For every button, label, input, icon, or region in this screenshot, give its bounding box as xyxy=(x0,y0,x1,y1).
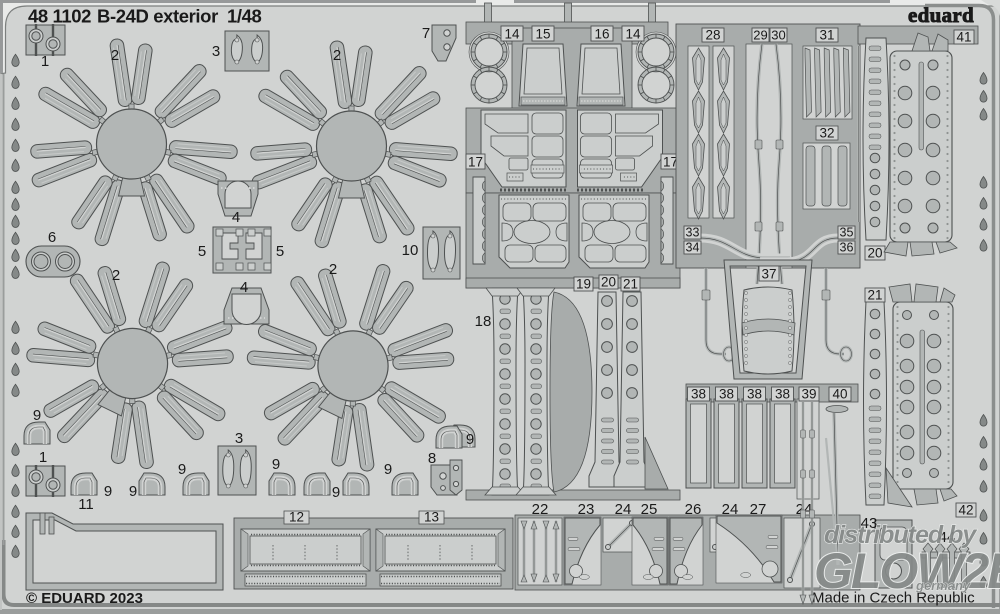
svg-text:38: 38 xyxy=(691,387,706,402)
svg-text:1: 1 xyxy=(41,53,49,70)
svg-text:4: 4 xyxy=(240,279,248,296)
svg-text:1/48: 1/48 xyxy=(227,6,262,27)
svg-text:27: 27 xyxy=(750,501,767,518)
svg-text:10: 10 xyxy=(402,242,419,259)
svg-text:42: 42 xyxy=(958,503,973,518)
svg-text:eduard: eduard xyxy=(908,3,974,27)
svg-text:9: 9 xyxy=(33,407,41,424)
svg-text:15: 15 xyxy=(535,27,550,42)
svg-text:25: 25 xyxy=(641,501,658,518)
svg-text:17: 17 xyxy=(468,155,483,170)
svg-text:9: 9 xyxy=(178,461,186,478)
svg-text:33: 33 xyxy=(686,226,700,240)
svg-text:35: 35 xyxy=(840,226,854,240)
svg-text:5: 5 xyxy=(276,243,284,260)
svg-text:37: 37 xyxy=(761,267,776,282)
svg-text:B-24D exterior: B-24D exterior xyxy=(97,6,218,27)
svg-text:2: 2 xyxy=(111,47,119,64)
svg-text:38: 38 xyxy=(719,387,734,402)
svg-text:16: 16 xyxy=(594,27,609,42)
svg-text:40: 40 xyxy=(832,387,847,402)
svg-text:germany: germany xyxy=(915,578,971,593)
svg-text:24: 24 xyxy=(722,501,739,518)
svg-text:38: 38 xyxy=(775,387,790,402)
svg-text:1: 1 xyxy=(39,449,47,466)
svg-text:9: 9 xyxy=(272,456,280,473)
svg-text:7: 7 xyxy=(422,25,430,42)
svg-text:48 1102: 48 1102 xyxy=(28,6,91,27)
svg-text:24: 24 xyxy=(615,501,632,518)
svg-text:5: 5 xyxy=(198,243,206,260)
svg-text:9: 9 xyxy=(129,483,137,500)
svg-text:GLOW2B: GLOW2B xyxy=(814,543,1000,599)
svg-text:30: 30 xyxy=(771,28,785,43)
svg-text:2: 2 xyxy=(112,267,120,284)
svg-text:13: 13 xyxy=(424,510,439,525)
svg-text:3: 3 xyxy=(212,43,220,60)
svg-text:3: 3 xyxy=(235,430,243,447)
svg-text:8: 8 xyxy=(428,450,436,467)
svg-text:39: 39 xyxy=(801,387,816,402)
svg-text:9: 9 xyxy=(466,431,474,448)
svg-text:9: 9 xyxy=(384,461,392,478)
svg-text:4: 4 xyxy=(232,209,240,226)
svg-text:9: 9 xyxy=(104,483,112,500)
svg-text:31: 31 xyxy=(819,28,834,43)
svg-text:21: 21 xyxy=(623,277,638,292)
svg-text:18: 18 xyxy=(475,313,492,330)
svg-text:2: 2 xyxy=(333,47,341,64)
svg-text:21: 21 xyxy=(867,288,882,303)
svg-text:38: 38 xyxy=(747,387,762,402)
svg-text:12: 12 xyxy=(289,510,304,525)
svg-text:29: 29 xyxy=(753,28,767,43)
svg-text:14: 14 xyxy=(625,27,641,42)
svg-text:36: 36 xyxy=(840,241,854,255)
svg-text:11: 11 xyxy=(78,496,94,513)
svg-text:2: 2 xyxy=(329,261,337,278)
svg-text:9: 9 xyxy=(332,484,340,501)
svg-text:26: 26 xyxy=(685,501,702,518)
svg-text:© EDUARD 2023: © EDUARD 2023 xyxy=(26,590,143,607)
svg-text:34: 34 xyxy=(686,241,700,255)
svg-text:19: 19 xyxy=(576,277,591,292)
svg-text:6: 6 xyxy=(48,229,56,246)
svg-text:23: 23 xyxy=(578,501,595,518)
svg-text:20: 20 xyxy=(867,246,882,261)
svg-text:28: 28 xyxy=(705,28,720,43)
svg-text:41: 41 xyxy=(956,30,971,45)
svg-text:22: 22 xyxy=(532,501,549,518)
svg-text:20: 20 xyxy=(601,275,616,290)
svg-text:14: 14 xyxy=(504,27,520,42)
svg-text:32: 32 xyxy=(819,126,834,141)
